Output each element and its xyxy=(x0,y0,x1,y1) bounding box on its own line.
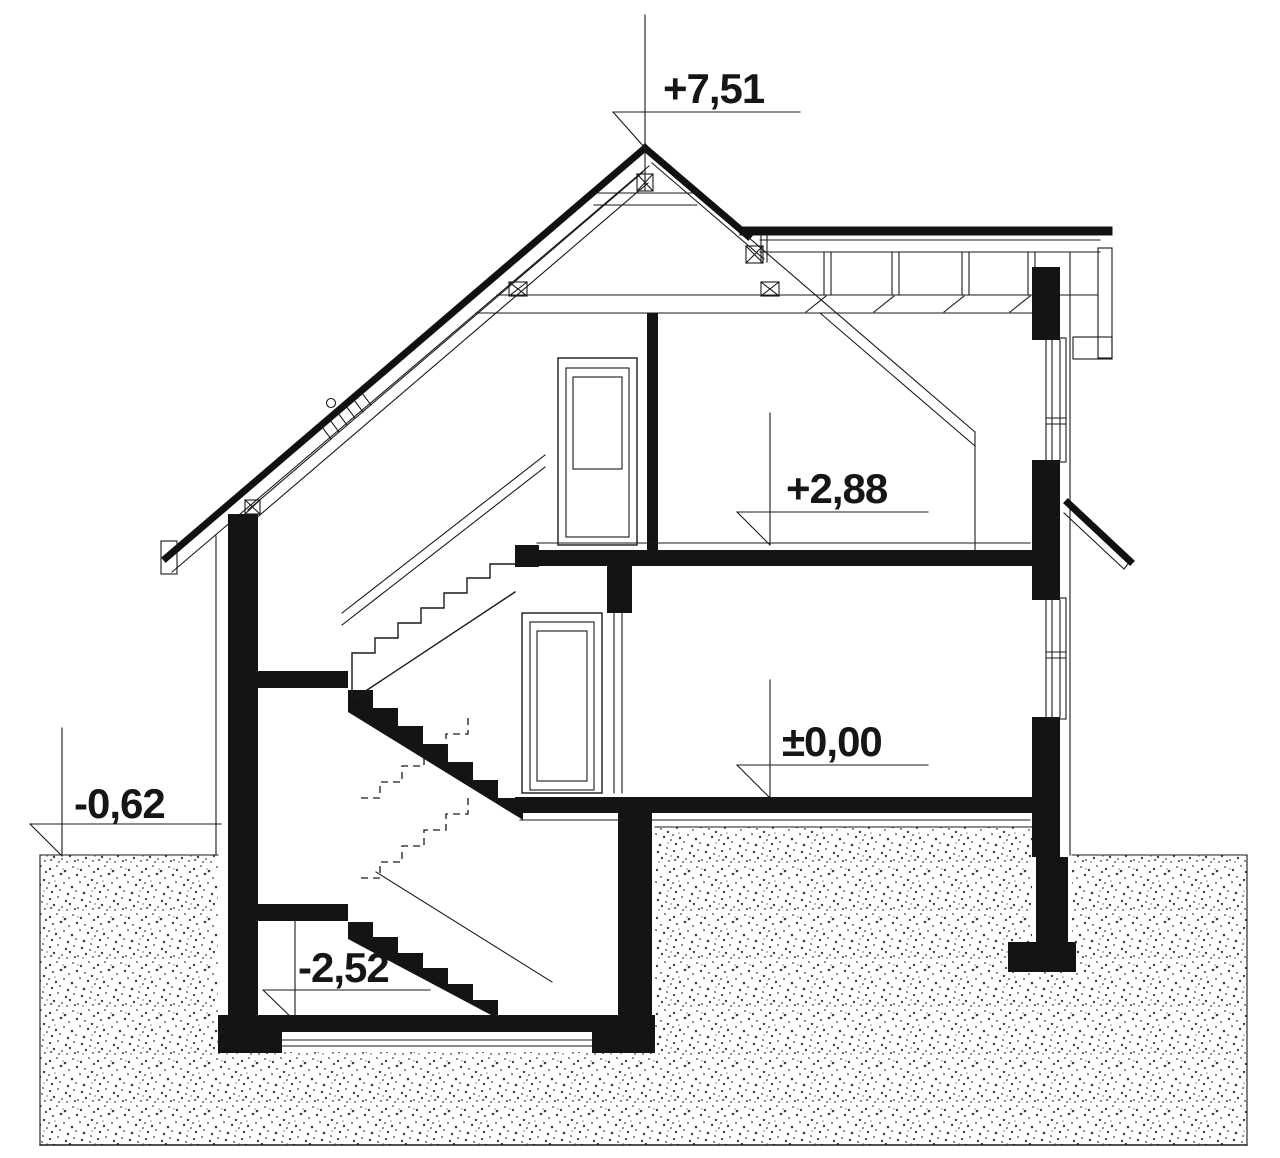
ground-interior-wall-lintel xyxy=(607,563,632,613)
upper-door-glazing xyxy=(573,377,622,469)
flat-roof-braces xyxy=(806,296,1030,312)
level-marker-basement: -2,52 xyxy=(263,918,430,1021)
dormer-flat-roof xyxy=(476,231,1112,359)
flat-roof-posts xyxy=(824,252,1035,295)
ground-window xyxy=(1046,598,1066,719)
ground-door-glazing xyxy=(537,631,587,781)
roof-left-board xyxy=(172,166,649,572)
level-marker-ground-floor: ±0,00 xyxy=(737,680,928,798)
upper-interior-wall xyxy=(647,313,658,550)
hidden-stair-flight-lower xyxy=(358,798,468,878)
roof-left-slope xyxy=(161,148,649,574)
roof-truss xyxy=(245,174,779,514)
level-marker-grade: -0,62 xyxy=(30,728,221,856)
stair-flight-ground-to-landing xyxy=(348,690,523,820)
stair-flight-landing-to-upper xyxy=(352,564,515,700)
level-label-upper-floor: +2,88 xyxy=(786,465,888,512)
upper-slab-edge-block xyxy=(515,545,539,567)
sloped-ceiling-line xyxy=(820,313,975,446)
roof-right-rafter xyxy=(652,163,764,259)
right-footing xyxy=(1008,942,1076,972)
pent-roof-underside xyxy=(1064,513,1124,569)
level-label-basement: -2,52 xyxy=(298,944,389,991)
roof-left-covering xyxy=(166,148,645,558)
level-label-ridge: +7,51 xyxy=(663,65,765,112)
soil-under-basement xyxy=(218,1052,655,1145)
ground-floor-slab xyxy=(515,797,1032,813)
wallplate-connector xyxy=(245,500,260,514)
soil-under-floor xyxy=(655,827,1032,1145)
dormer-soffit-box xyxy=(1073,337,1112,359)
pent-roof-right xyxy=(1064,503,1130,569)
lower-landing-slab xyxy=(256,904,348,921)
basement-right-wall xyxy=(618,813,652,1015)
level-marker-ridge: +7,51 xyxy=(613,15,800,191)
right-wall-bottom xyxy=(1032,717,1060,857)
roof-left-rafter-top xyxy=(248,172,643,510)
right-wall-below-grade xyxy=(1036,857,1068,942)
upper-door-frame xyxy=(558,358,637,545)
purlin-marker xyxy=(327,399,336,408)
joist-connector-right xyxy=(761,282,779,296)
section-drawing: +7,51 +2,88 ±0,00 -0,62 -2,52 xyxy=(0,0,1280,1158)
soil-under-footing xyxy=(1032,972,1072,1145)
right-wall-mid xyxy=(1032,460,1060,600)
soil-right xyxy=(1072,855,1247,1145)
section-canvas: +7,51 +2,88 ±0,00 -0,62 -2,52 xyxy=(0,0,1280,1158)
dormer-fascia-right xyxy=(1098,248,1112,358)
level-marker-upper-floor: +2,88 xyxy=(737,413,928,545)
upper-landing-slab xyxy=(256,671,348,688)
stair-railing-top xyxy=(342,455,545,613)
soil-left xyxy=(40,855,218,1145)
ground-door-leaf xyxy=(530,622,594,790)
upper-door-leaf xyxy=(566,368,629,537)
upper-window xyxy=(1046,338,1066,462)
upper-floor-slab xyxy=(537,550,1032,566)
right-wall-top xyxy=(1032,267,1060,340)
level-label-ground-floor: ±0,00 xyxy=(782,718,882,765)
ground-door-frame xyxy=(522,613,602,793)
left-exterior-wall xyxy=(228,514,258,1032)
roof-right-slope-under-dormer xyxy=(748,237,975,432)
basement-floor-slab xyxy=(252,1015,652,1032)
level-label-grade: -0,62 xyxy=(74,780,165,827)
pent-roof-covering xyxy=(1068,503,1130,561)
roof-right-covering xyxy=(645,148,748,236)
